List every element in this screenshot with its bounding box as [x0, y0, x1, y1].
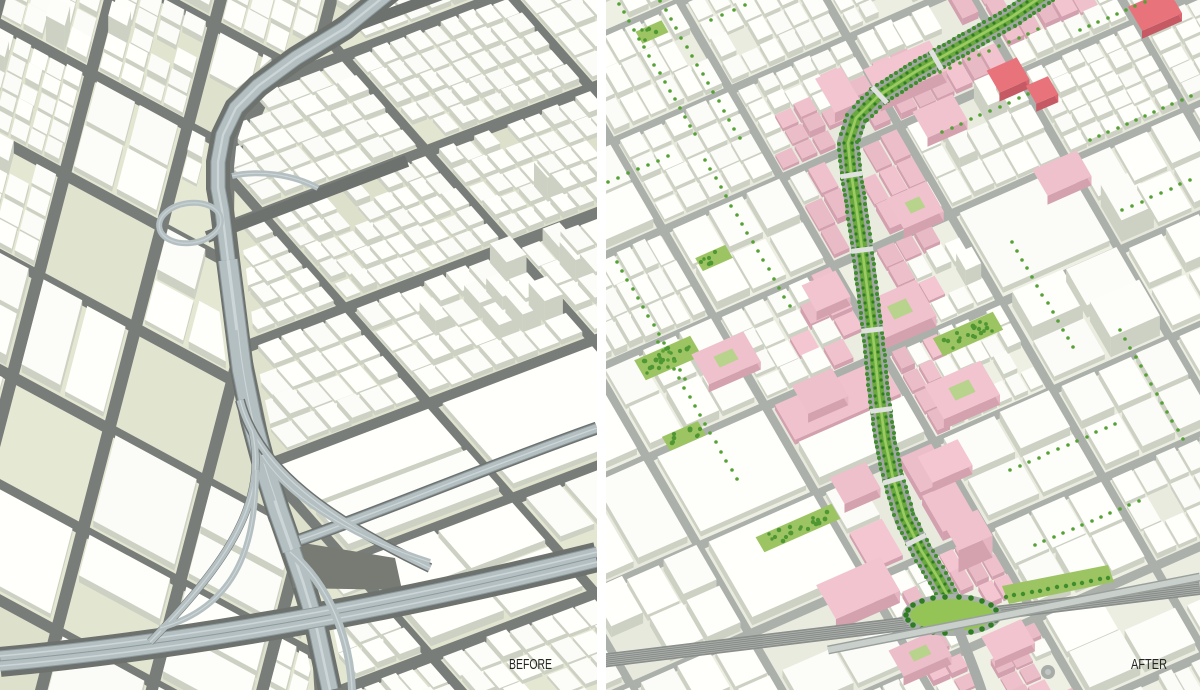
svg-text:BEFORE: BEFORE: [509, 657, 552, 673]
svg-text:AFTER: AFTER: [1131, 657, 1167, 673]
